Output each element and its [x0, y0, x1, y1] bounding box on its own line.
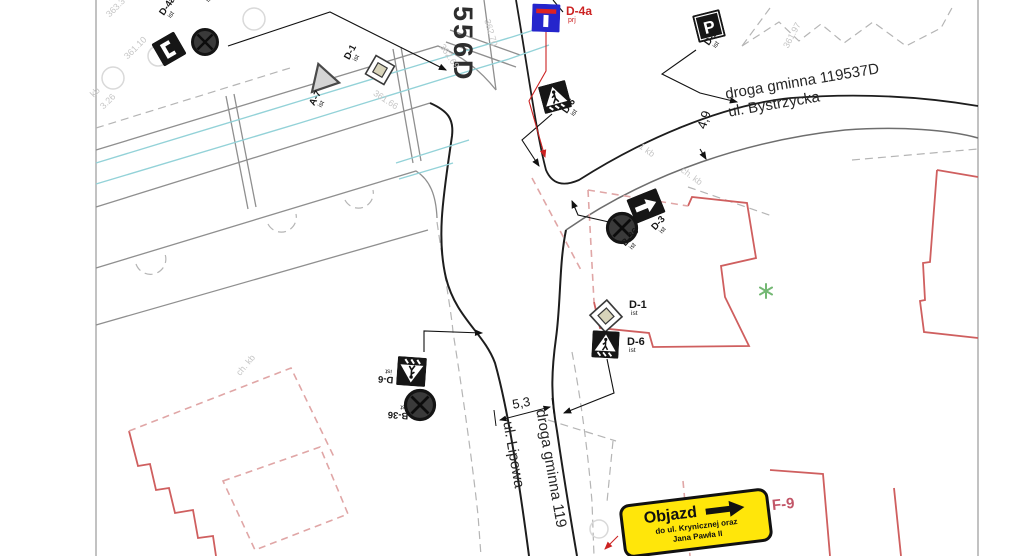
dimension-lipowa-width: 5,3	[511, 394, 531, 412]
building-outline	[770, 470, 901, 556]
sign-icon-d4a-no-through-road-proposed	[532, 4, 561, 33]
sign-icon-d6-pedestrian-crossing-existing	[591, 330, 619, 358]
sign-label-d6-existing: D-6 ist	[378, 367, 394, 384]
sign-icon-d1-priority-road-existing	[587, 297, 625, 335]
road-edge	[96, 103, 430, 207]
road-edge	[96, 171, 437, 268]
sign-icon-b36-no-stopping-existing	[188, 25, 222, 59]
sign-status: ist	[388, 402, 407, 410]
sign-icon-d6-pedestrian-crossing-existing	[396, 356, 427, 387]
tree-circles	[102, 8, 608, 538]
sign-label-b36-existing: B-36 ist	[387, 402, 409, 420]
sign-status: ist	[629, 348, 645, 355]
green-star-icon	[760, 284, 772, 298]
sign-label-d4a-proposed: D-4a prj	[566, 5, 592, 24]
building-outline	[129, 431, 216, 556]
sign-status: ist	[378, 367, 392, 375]
sign-label-f9: F-9	[771, 495, 795, 514]
sign-status: prj	[568, 17, 592, 24]
sign-label-d1-existing: D-1 ist	[629, 300, 647, 318]
road-edge	[96, 230, 428, 325]
sign-status: ist	[631, 311, 647, 318]
building-outline	[920, 170, 978, 338]
road-number-vertical: 556D	[447, 6, 478, 83]
sign-code: D-4a	[566, 5, 592, 17]
sign-label-d6-existing: D-6 ist	[627, 337, 645, 355]
traffic-organization-plan: P D-4a ist B-36 i	[0, 0, 1024, 556]
road-edge	[96, 46, 496, 150]
driveway-crossing	[226, 94, 256, 209]
